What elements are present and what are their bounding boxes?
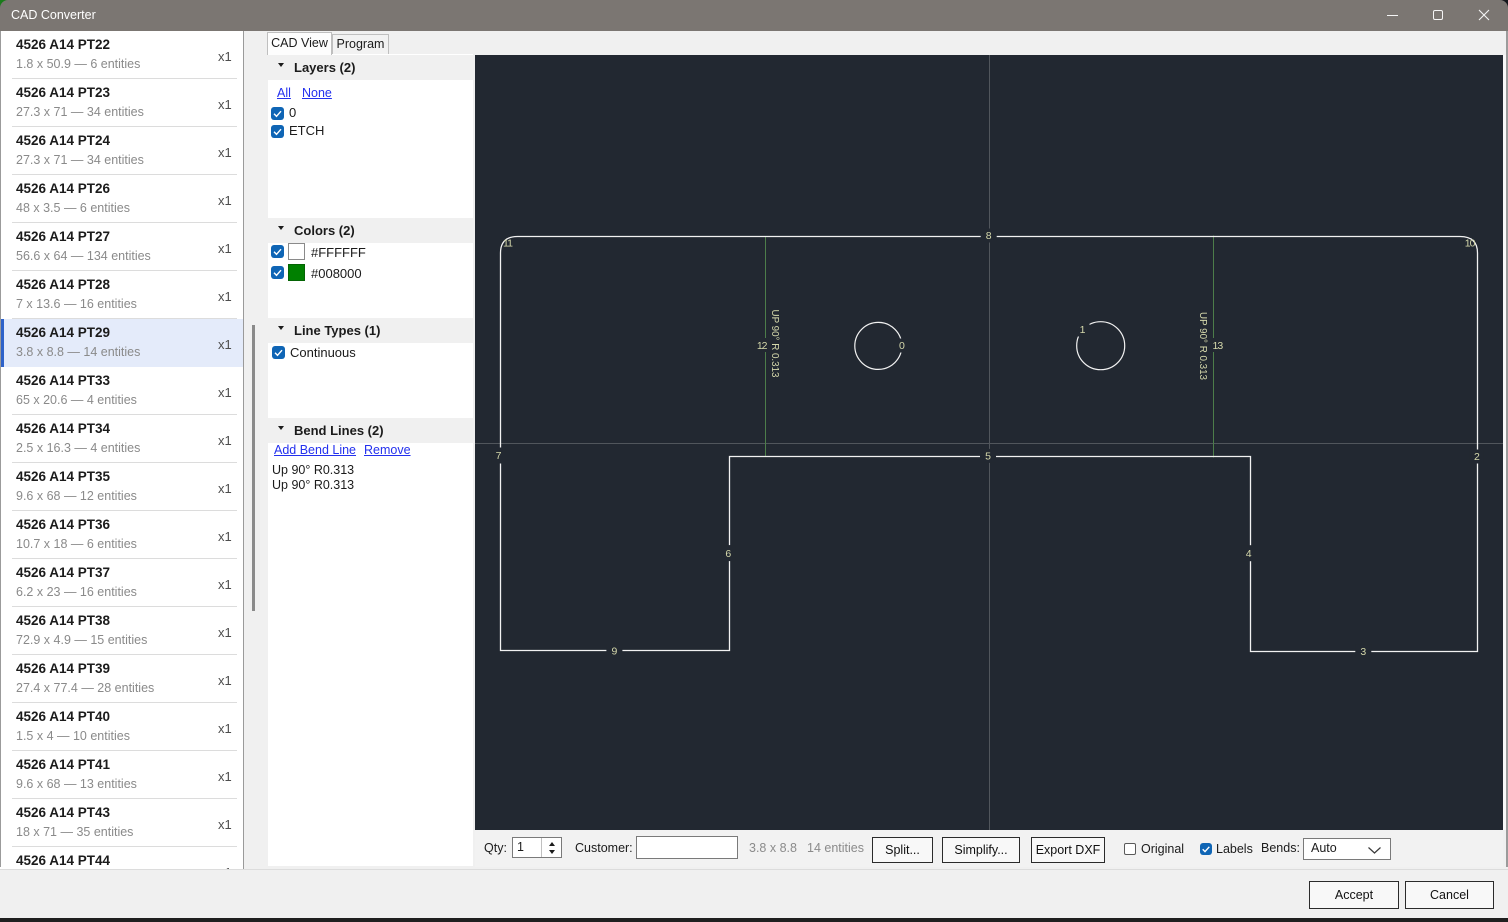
svg-text:13: 13 (1213, 340, 1224, 352)
svg-text:9: 9 (611, 646, 617, 658)
svg-text:UP 90° R 0.313: UP 90° R 0.313 (769, 309, 780, 378)
svg-text:3: 3 (1360, 646, 1366, 658)
svg-text:8: 8 (986, 230, 992, 242)
svg-text:11: 11 (503, 238, 513, 250)
svg-text:2: 2 (1474, 451, 1480, 463)
svg-text:7: 7 (496, 450, 502, 462)
svg-text:5: 5 (985, 451, 991, 463)
svg-text:6: 6 (725, 548, 731, 560)
svg-text:UP 90° R 0.313: UP 90° R 0.313 (1197, 312, 1208, 381)
svg-text:1: 1 (1080, 324, 1086, 336)
svg-text:12: 12 (757, 340, 768, 352)
svg-text:0: 0 (899, 340, 905, 352)
svg-text:4: 4 (1246, 548, 1252, 560)
svg-text:10: 10 (1465, 238, 1476, 250)
